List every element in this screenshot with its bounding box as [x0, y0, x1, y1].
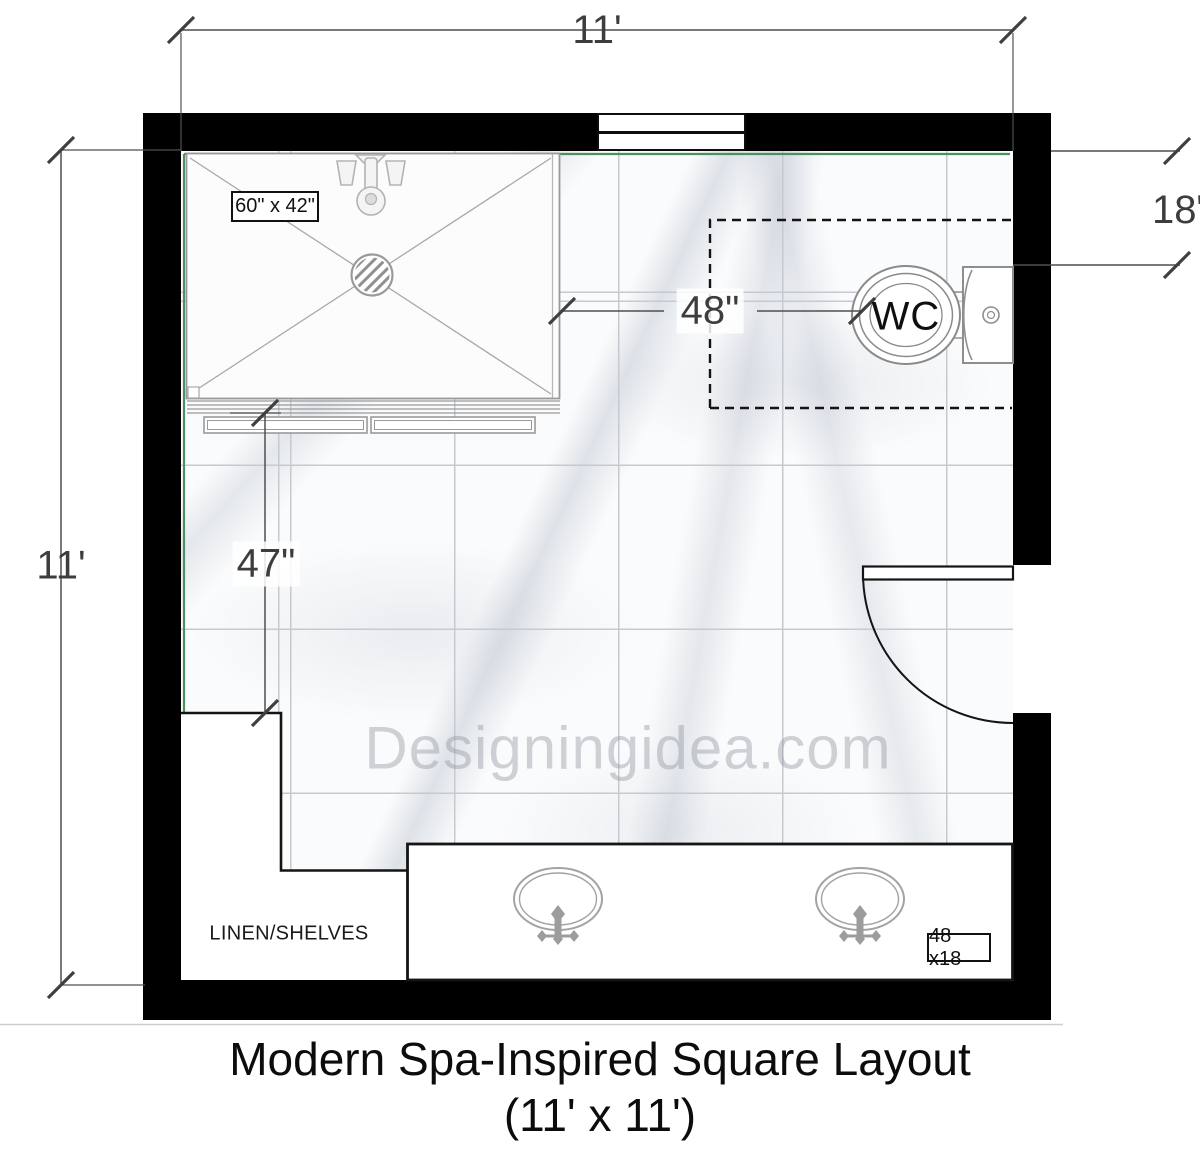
title-line1: Modern Spa-Inspired Square Layout — [0, 1032, 1200, 1086]
linen-label: LINEN/SHELVES — [209, 923, 368, 946]
dim-top-label: 11' — [572, 8, 621, 53]
wc-label: WC — [872, 295, 941, 340]
dim-left-label: 11' — [36, 544, 85, 589]
dim-48-label: 48" — [677, 289, 744, 334]
floor-plan: Designingidea.com — [0, 0, 1200, 1153]
title-line2: (11' x 11') — [0, 1088, 1200, 1142]
toilet-tank — [963, 267, 1013, 363]
door-swing-arc — [863, 573, 1013, 723]
dim-47-label: 47" — [233, 542, 300, 587]
entry-door — [863, 567, 1013, 724]
shower-size-label: 60" x 42" — [231, 191, 319, 222]
plan-linework — [0, 0, 1200, 1153]
vanity-counter — [408, 844, 1013, 980]
vanity-size-label: 48 x18 — [927, 933, 991, 962]
shower-door-track — [187, 401, 560, 413]
door-leaf — [863, 567, 1013, 580]
dim-18-label: 18" — [1152, 188, 1200, 233]
